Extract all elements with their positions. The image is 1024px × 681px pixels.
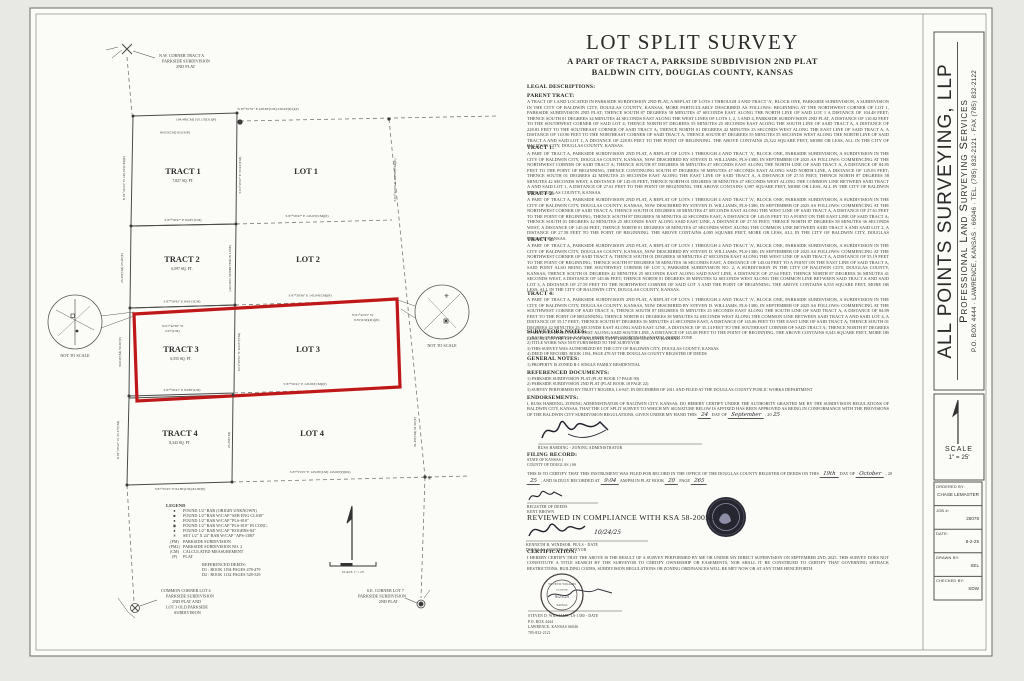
bearing-label: 84.05'(CM) 85.03'(P)	[160, 131, 191, 135]
deed-line: D2 : BOOK 1132 PAGES 528-529	[202, 572, 344, 577]
filing-county: COUNTY OF DOUGLAS ) SS	[527, 463, 892, 468]
filing-text: THIS IS TO CERTIFY THAT THIS INSTRUMENT …	[527, 471, 819, 476]
endorsements-tail: .	[781, 412, 782, 417]
referenced-deeds: REFERENCED DEEDS: D1 : BOOK 1194 PAGES 4…	[202, 562, 344, 577]
detail-star-symbol: ✳	[444, 293, 449, 300]
field-value: SEL	[934, 560, 982, 568]
survey-sheet: ✳	[0, 0, 1024, 681]
endorsements-mid1: DAY OF	[712, 412, 727, 417]
firm-name: ALL POINTS SURVEYING, LLP	[936, 34, 956, 388]
corner-se-label: PARKSIDE SUBDIVISION	[358, 594, 406, 599]
tract-area: 6,597 SQ. FT.	[171, 267, 192, 272]
lot-label: LOT 2	[296, 255, 320, 264]
tract-area: 6,555 SQ. FT.	[170, 357, 191, 362]
corner-nw-label: N.W. CORNER TRACT A	[159, 53, 204, 58]
handwritten-book: 20	[665, 478, 679, 485]
field-label: CHECKED BY:	[934, 576, 982, 583]
handwritten-day: 24	[697, 413, 711, 419]
corner-se-label: S.E. CORNER LOT 7	[367, 588, 404, 593]
corner-nw-marker	[106, 44, 155, 58]
section-tract-3: TRACT 3: A PART OF TRACT A, PARKSIDE SUB…	[527, 237, 889, 293]
bearing-label: (ALONG SUBDIVISION LINE)	[228, 244, 232, 291]
tract-label: TRACT 1	[165, 167, 200, 176]
bearing-label: S 87°58'42" E 84.91'(CM)	[164, 300, 202, 304]
bearing-label: 25.38'(CM) 25.40'(P)	[120, 252, 124, 283]
corner-sw-label: LOT 3 OLD PARKSIDE	[166, 605, 208, 610]
corner-se-label: 2ND PLAT	[379, 599, 399, 604]
field-label: DATE:	[934, 529, 982, 536]
bearing-label: N 01°35'12" W 35.17'(CM)	[116, 420, 120, 459]
section-general-notes: GENERAL NOTES: 1) PROPERTY IS ZONED R-1 …	[527, 356, 889, 367]
page-header: LOT SPLIT SURVEY A PART OF TRACT A, PARK…	[505, 30, 880, 77]
filing-text: .	[709, 478, 710, 483]
bearing-label: S 87°58'47" E 84.85'(CM)	[165, 218, 203, 222]
filing-text: , 20	[885, 471, 892, 476]
bearing-label: N 01°42'25" W	[352, 313, 374, 317]
page-title: LOT SPLIT SURVEY	[505, 30, 880, 55]
corner-sw-label: PARKSIDE SUBDIVISION	[166, 594, 214, 599]
field-value: 25078	[934, 513, 982, 521]
bearing-label: N 01°34'44" W 110.82'(CM)(P)	[122, 155, 126, 200]
zoning-admin-caption: RUSS HARDING - ZONING ADMINISTRATOR	[538, 446, 622, 450]
corner-nw-label: 2ND PLAT	[176, 64, 196, 69]
legend-item: (P)PLAT	[166, 554, 344, 559]
handwritten-page: 265	[691, 478, 708, 485]
firm-tagline: Professional Land Surveying Services	[957, 42, 971, 380]
firm-address: P.O. BOX 4444 · LAWRENCE, KANSAS · 66046…	[971, 34, 979, 388]
filing-paragraph: THIS IS TO CERTIFY THAT THIS INSTRUMENT …	[527, 471, 892, 485]
field-drawn-by: DRAWN BY: SEL	[934, 553, 982, 576]
surveyor-caption-name: KENNETH B. WINDSOR, PE/LS - DATE	[526, 543, 598, 547]
section-body: A PART OF TRACT A, PARKSIDE SUBDIVISION …	[527, 197, 889, 241]
legend-symbol: (P)	[166, 554, 183, 559]
tract-area: 8,343 SQ. FT.	[169, 441, 190, 446]
section-certification: CERTIFICATION: I HEREBY CERTIFY THAT THE…	[527, 549, 889, 571]
stamp-caption-po: P.O. BOX 4444	[528, 620, 553, 624]
field-date: DATE: 8-2-25	[934, 529, 982, 552]
stamp-name-text: STEVEN D. WILLIAMS	[548, 583, 576, 586]
not-to-scale-label: NOT TO SCALE	[427, 343, 457, 348]
section-body: A PART OF TRACT A, PARKSIDE SUBDIVISION …	[527, 151, 889, 195]
endorsements-mid2: , 20	[765, 412, 771, 417]
bearing-label: S 01°38'52" E 110.87'(CM)	[237, 332, 241, 371]
section-endorsements: ENDORSEMENTS: I, RUSS HARDING, ZONING AD…	[527, 395, 889, 419]
bearing-label: S 87°58'47" E 145.03'(CM)(P)	[286, 214, 330, 218]
filing-text: DAY OF	[840, 471, 855, 476]
corner-sw-label: 2ND PLAT AND	[172, 599, 201, 604]
section-tract-1: TRACT 1: A PART OF TRACT A, PARKSIDE SUB…	[527, 145, 889, 195]
bearing-label: S 01°38'47" E 55.94'(CM)	[238, 156, 242, 194]
register-signature	[527, 491, 598, 503]
lot-label: LOT 1	[294, 167, 318, 176]
field-job-number: JOB #: 25078	[934, 506, 982, 529]
filing-text: PLAT BOOK	[641, 478, 664, 483]
stamp-state-text: KANSAS	[557, 604, 568, 607]
handwritten-review-date: 10/24/25	[594, 529, 622, 536]
stamp-caption-city: LAWRENCE, KANSAS 66046	[528, 625, 578, 629]
handwritten-month: September	[728, 413, 765, 419]
field-label: JOB #:	[934, 506, 982, 513]
firm-title-block: ALL POINTS SURVEYING, LLP Professional L…	[936, 34, 982, 388]
bearing-label: S 01°42'25" E 110.90'(CM)(P)	[393, 158, 397, 202]
note-line: 3) SURVEY PERFORMED BY TRUITT ROGERS, LS…	[527, 387, 889, 392]
filing-text: AM/PM IN	[620, 478, 640, 483]
filing-text: PAGE	[679, 478, 690, 483]
bearing-label: S 87°55'25" E 145.08'(CM) 145.00'(P)(D2)	[290, 470, 352, 474]
handwritten-time: 9:04	[600, 478, 619, 485]
bearing-label: 104.48'(CM) 105.13'(D1)(P)	[176, 118, 217, 122]
legal-descriptions-title: LEGAL DESCRIPTIONS:	[527, 84, 595, 90]
not-to-scale-label: NOT TO SCALE	[60, 353, 90, 358]
page-subtitle-2: BALDWIN CITY, DOUGLAS COUNTY, KANSAS	[505, 67, 880, 77]
bearing-label: 2.97'(CM)	[165, 329, 180, 333]
bearing-label: 81.48'(CM) 81.50'(P)	[413, 416, 417, 447]
county-surveyor-signature	[526, 524, 648, 541]
bearing-label: S 87°56'41" E 145.06'(CM)(P)	[284, 382, 328, 386]
note-line: 1) PROPERTY IS ZONED R-1 SINGLE FAMILY R…	[527, 362, 889, 367]
scale-label: SCALE	[934, 446, 984, 453]
field-label: ORDERED BY:	[934, 482, 982, 489]
zoning-admin-signature	[538, 421, 702, 444]
bar-scale-caption: SCALE 1" = 25'	[342, 570, 365, 574]
corner-se-marker	[405, 590, 430, 608]
handwritten-year: 25	[527, 478, 541, 485]
stamp-hand-date: 9/23/25	[555, 594, 570, 599]
lot-label: LOT 4	[300, 429, 325, 438]
corner-sw-label: COMMON CORNER LOT 4	[161, 588, 212, 593]
filing-text: , AND IS DULY RECORDED AT	[541, 478, 600, 483]
detail-circle-right: ✳	[398, 285, 469, 339]
bearing-label: 8.35'(CM)(D1)(P)	[354, 318, 380, 322]
stamp-licensed-text: LICENSED	[556, 589, 568, 592]
lot-label: LOT 3	[296, 345, 320, 354]
tract-label: TRACT 2	[164, 255, 199, 264]
bearing-label: N 01°42'38" W	[162, 324, 184, 328]
stamp-caption-name: STEVEN D. WILLIAMS, LS-1380 - DATE	[528, 614, 598, 618]
section-surveyors-notes: SURVEYORS NOTES: 1) BASIS OF BEARINGS: K…	[527, 329, 889, 356]
corner-sw-marker	[118, 598, 157, 618]
bearing-label: S 87°55'25" E 84.89'(CM) 84.99'(P)	[155, 487, 206, 491]
handwritten-month: October	[856, 471, 885, 478]
handwritten-day: 19th	[820, 471, 839, 478]
bearing-label: N 87°55'55" E 228.83'(CM) 230.03'(D1)(P)	[237, 107, 299, 111]
field-checked-by: CHECKED BY: SDW	[934, 576, 982, 599]
tract-area: 7,827 SQ. FT.	[172, 179, 193, 184]
bearing-label: S 87°56'41" E 84.88'(CM)	[164, 388, 202, 392]
stamp-caption-phone: 785-832-2121	[528, 631, 551, 635]
legend: LEGEND ●FOUND 1/2" BAR (ORIGIN UNKNOWN) …	[166, 503, 344, 577]
scale-value: 1" = 25'	[934, 454, 984, 461]
scale-box: SCALE 1" = 25'	[934, 446, 984, 461]
bearing-label: 25.38'(CM)	[227, 431, 231, 448]
reviewed-heading: REVIEWED IN COMPLIANCE WITH KSA 58-2005 …	[527, 513, 714, 522]
field-label: DRAWN BY:	[934, 553, 982, 560]
field-ordered-by: ORDERED BY: CHASE LEMASTER	[934, 482, 982, 505]
section-body: A PART OF TRACT A, PARKSIDE SUBDIVISION …	[527, 243, 889, 293]
field-value: CHASE LEMASTER	[934, 489, 982, 497]
section-tract-2: TRACT 2: A PART OF TRACT A, PARKSIDE SUB…	[527, 191, 889, 241]
tract-label: TRACT 4	[162, 429, 198, 438]
tract-label: TRACT 3	[163, 345, 198, 354]
field-value: SDW	[934, 583, 982, 591]
surveyor-stamp: STEVEN D. WILLIAMS LICENSED 9/23/25 KANS…	[541, 574, 583, 616]
legend-text: PLAT	[183, 554, 193, 559]
handwritten-year: 25	[772, 413, 779, 418]
north-arrow-titleblock	[953, 400, 958, 444]
section-filing-record: FILING RECORD: STATE OF KANSAS ) COUNTY …	[527, 452, 892, 485]
endorsements-paragraph: I, RUSS HARDING, ZONING ADMINISTRATOR OF…	[527, 401, 889, 419]
bearing-label: 50.03'(CM) 50.30'(P)	[118, 336, 122, 367]
page-subtitle-1: A PART OF TRACT A, PARKSIDE SUBDIVISION …	[505, 56, 880, 66]
section-body: A TRACT OF LAND LOCATED IN PARKSIDE SUBD…	[527, 99, 889, 149]
section-body: I HEREBY CERTIFY THAT THE ABOVE IS THE R…	[527, 555, 889, 571]
section-parent-tract: PARENT TRACT: A TRACT OF LAND LOCATED IN…	[527, 93, 889, 149]
corner-nw-label: PARKSIDE SUBDIVISION	[162, 59, 210, 64]
set-bar-symbol: ✳	[427, 475, 432, 482]
field-value: 8-2-25	[934, 536, 982, 544]
bearing-label: S 87°58'36" E 145.04'(CM)(P)	[289, 294, 333, 298]
corner-sw-label: SUBDIVISION	[174, 610, 201, 615]
section-referenced-documents: REFERENCED DOCUMENTS: 1) PARKSIDE SUBDIV…	[527, 370, 889, 392]
register-caption-title: REGISTER OF DEEDS	[527, 505, 568, 509]
